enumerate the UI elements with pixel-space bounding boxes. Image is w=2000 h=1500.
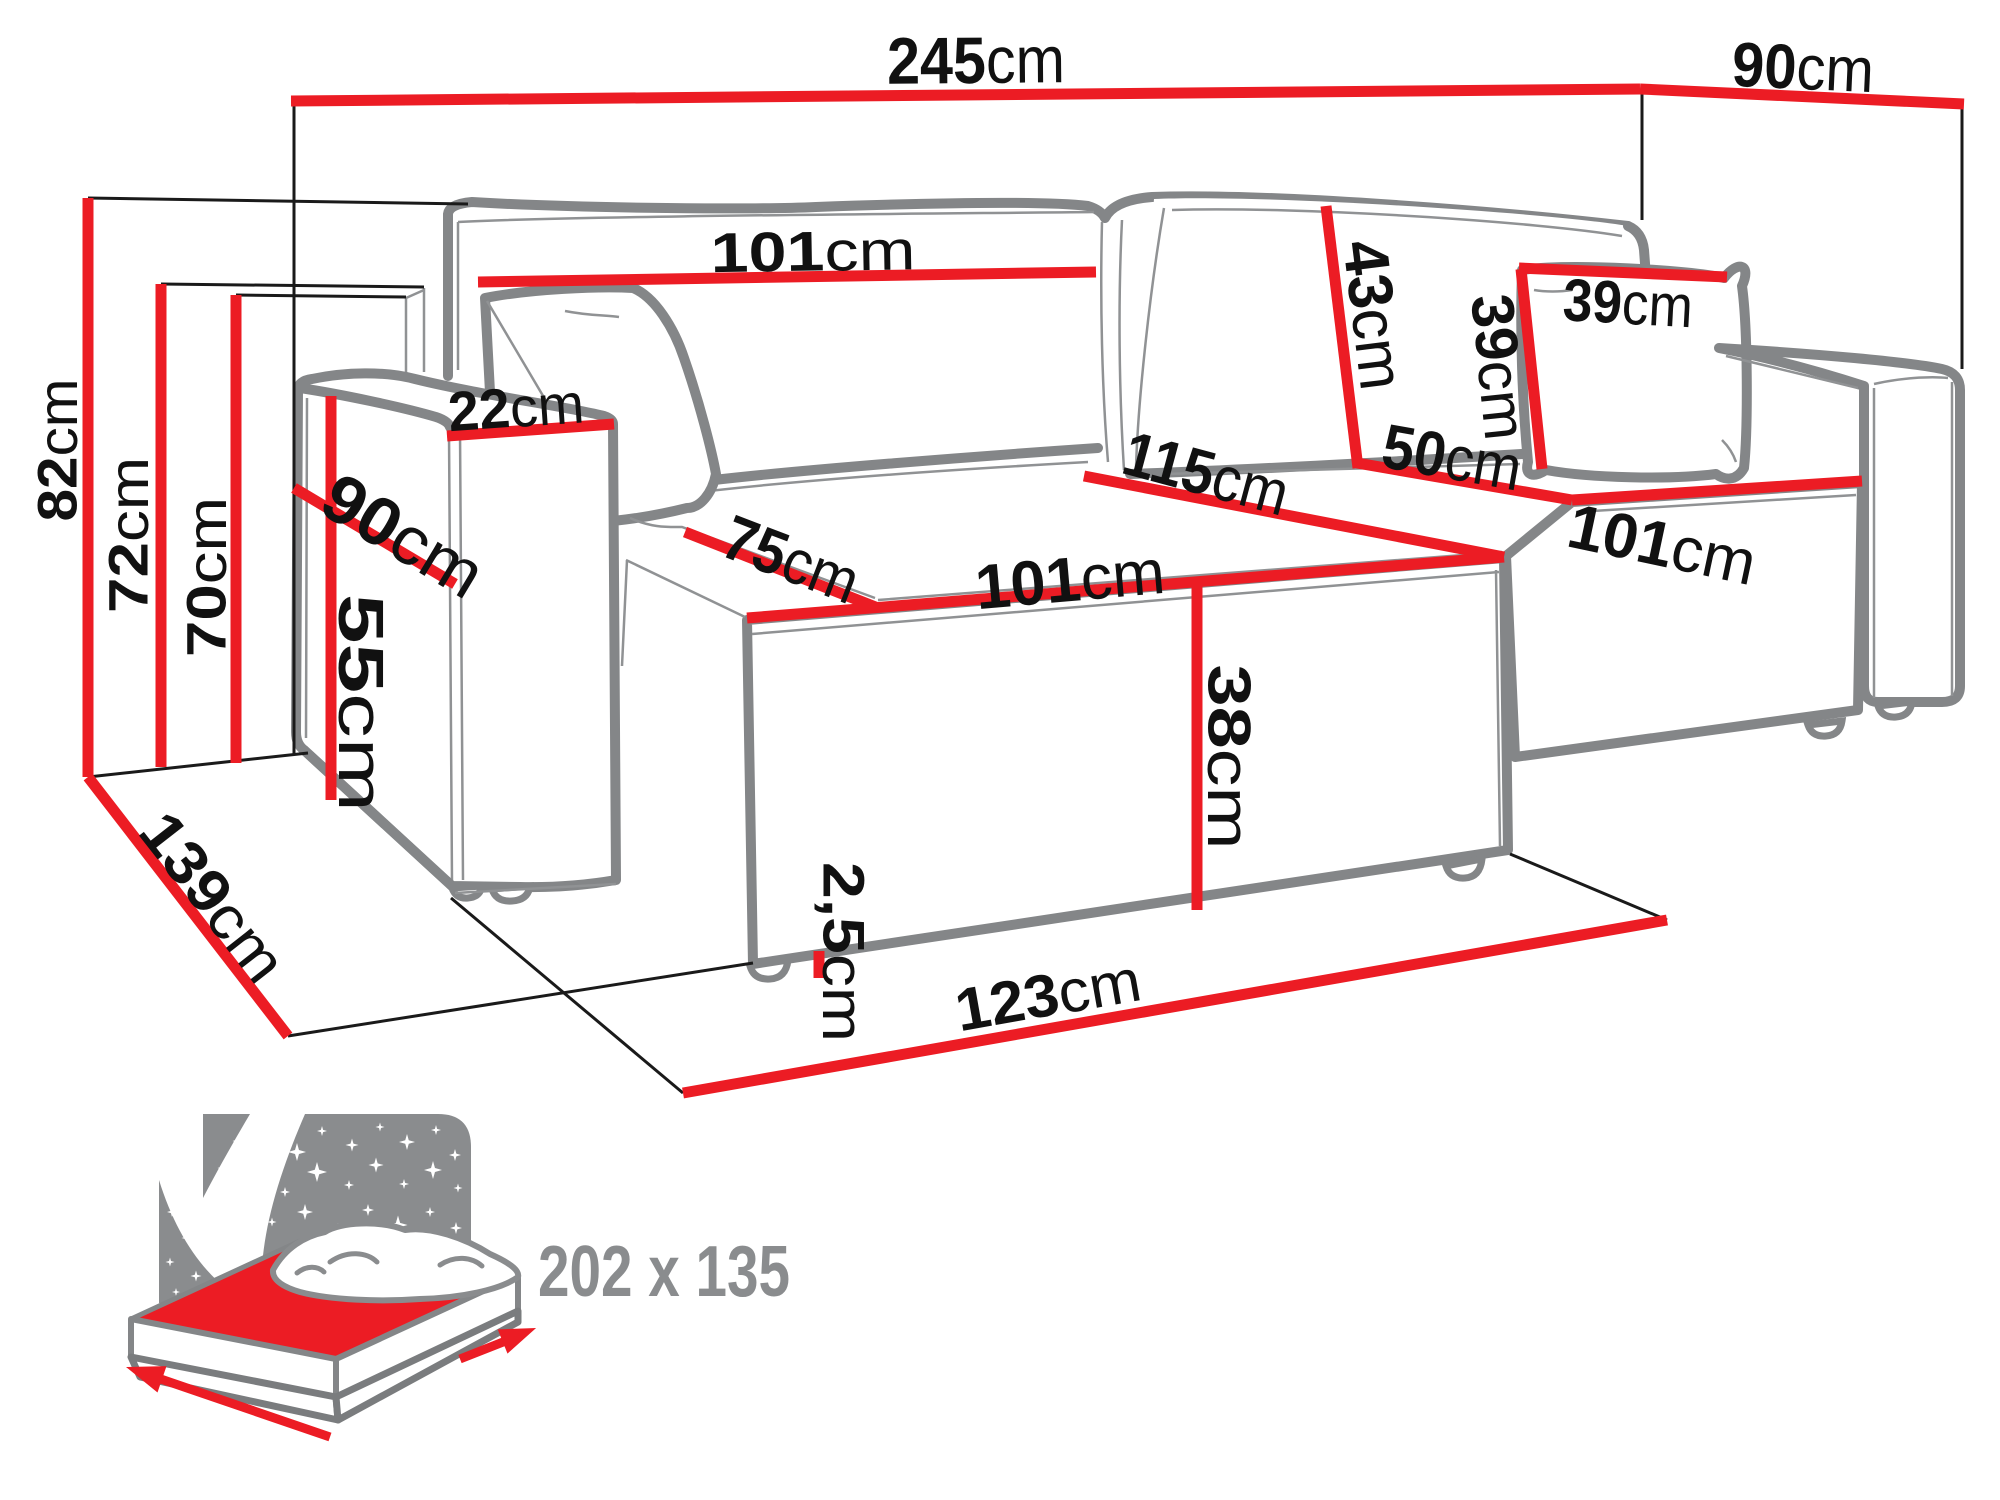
svg-text:202 x 135: 202 x 135	[538, 1232, 790, 1312]
svg-text:101cm: 101cm	[710, 218, 916, 285]
svg-text:72cm: 72cm	[97, 457, 160, 613]
svg-text:90cm: 90cm	[1730, 30, 1875, 106]
svg-text:55cm: 55cm	[325, 594, 397, 812]
svg-text:245cm: 245cm	[887, 22, 1066, 98]
svg-text:38cm: 38cm	[1196, 665, 1263, 850]
svg-text:70cm: 70cm	[175, 497, 238, 657]
svg-text:82cm: 82cm	[26, 379, 89, 522]
svg-text:39cm: 39cm	[1561, 266, 1694, 340]
svg-text:22cm: 22cm	[446, 371, 586, 443]
svg-text:2,5cm: 2,5cm	[811, 862, 876, 1042]
